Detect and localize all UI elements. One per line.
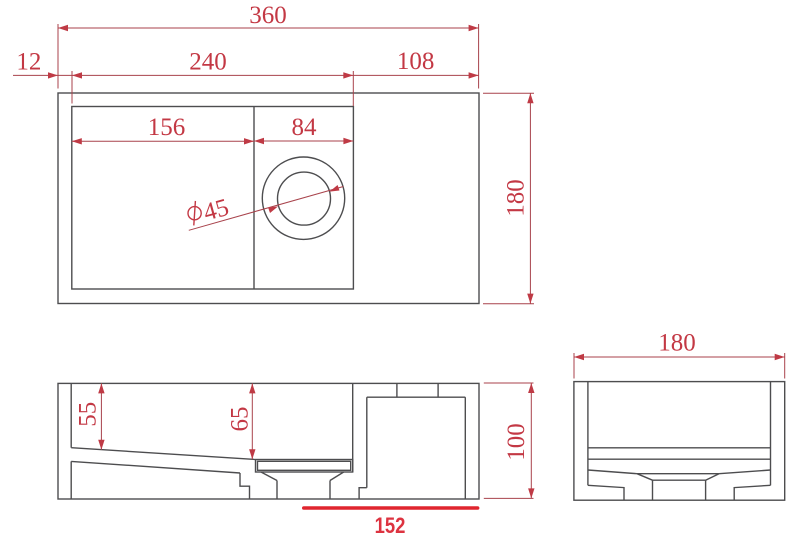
svg-text:65: 65 — [227, 407, 254, 432]
svg-text:180: 180 — [658, 330, 696, 357]
svg-text:108: 108 — [397, 48, 435, 75]
svg-text:12: 12 — [16, 49, 41, 76]
svg-text:360: 360 — [249, 2, 287, 29]
svg-text:156: 156 — [148, 114, 186, 141]
svg-text:100: 100 — [503, 423, 530, 461]
svg-text:152: 152 — [375, 515, 406, 539]
svg-text:84: 84 — [292, 114, 318, 141]
svg-text:55: 55 — [75, 402, 102, 427]
svg-text:240: 240 — [189, 49, 227, 76]
svg-text:180: 180 — [503, 179, 530, 217]
